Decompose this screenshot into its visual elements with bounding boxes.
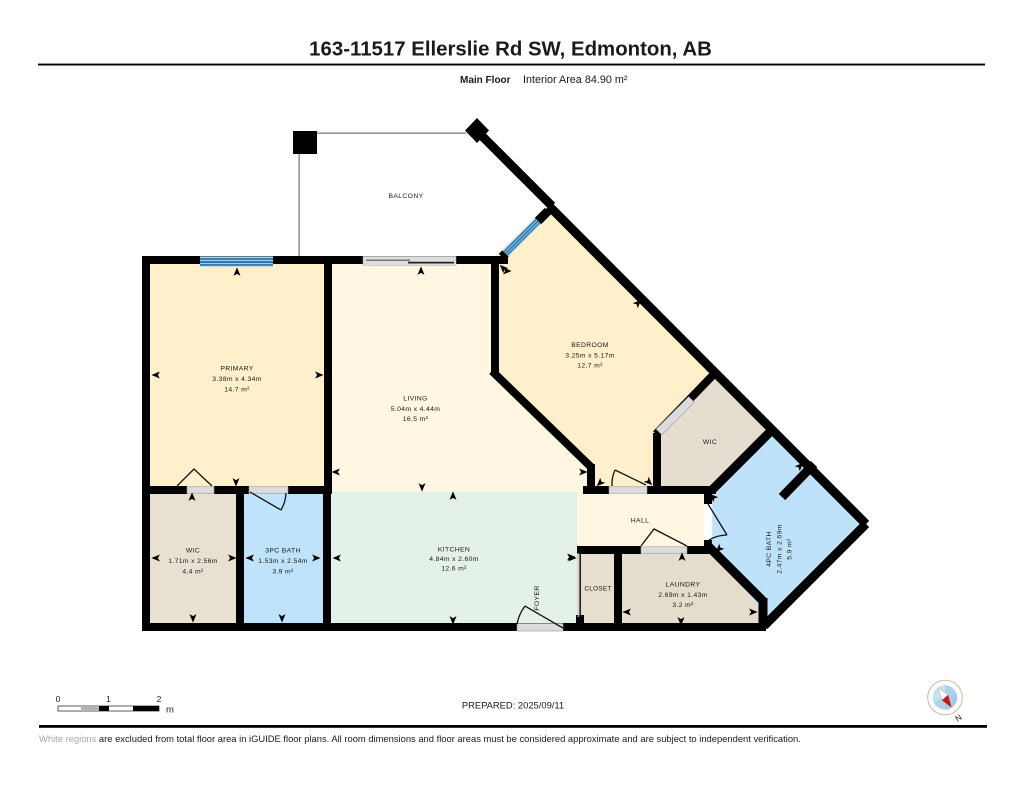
svg-text:LIVING: LIVING: [403, 396, 427, 403]
svg-text:5.9 m²: 5.9 m²: [787, 538, 794, 560]
svg-text:PRIMARY: PRIMARY: [220, 366, 253, 373]
svg-text:2: 2: [157, 694, 162, 704]
svg-text:KITCHEN: KITCHEN: [438, 547, 470, 554]
svg-text:1.53m x 2.54m: 1.53m x 2.54m: [258, 558, 308, 565]
svg-text:163-11517 Ellerslie Rd SW, Edm: 163-11517 Ellerslie Rd SW, Edmonton, AB: [309, 39, 712, 61]
svg-text:3.25m x 5.17m: 3.25m x 5.17m: [565, 352, 615, 359]
svg-text:5.04m x 4.44m: 5.04m x 4.44m: [391, 406, 441, 413]
svg-text:4.84m x 2.60m: 4.84m x 2.60m: [429, 556, 479, 563]
svg-text:3.2 m²: 3.2 m²: [672, 602, 694, 609]
svg-text:PREPARED: 2025/09/11: PREPARED: 2025/09/11: [462, 700, 564, 711]
svg-text:2.69m x 1.43m: 2.69m x 1.43m: [658, 592, 708, 599]
svg-text:FOYER: FOYER: [534, 585, 541, 610]
svg-text:WIC: WIC: [186, 548, 200, 555]
svg-text:3.38m x 4.34m: 3.38m x 4.34m: [212, 376, 262, 383]
svg-text:3.9 m²: 3.9 m²: [272, 568, 294, 575]
svg-text:LAUNDRY: LAUNDRY: [666, 582, 701, 589]
svg-text:HALL: HALL: [631, 518, 649, 525]
svg-text:14.7 m²: 14.7 m²: [224, 386, 250, 393]
svg-text:4.4 m²: 4.4 m²: [182, 568, 204, 575]
svg-text:BALCONY: BALCONY: [389, 193, 424, 200]
svg-text:12.7 m²: 12.7 m²: [577, 363, 603, 370]
svg-text:12.6 m²: 12.6 m²: [441, 566, 467, 573]
svg-text:White regions are excluded fro: White regions are excluded from total fl…: [39, 733, 801, 744]
svg-text:3PC BATH: 3PC BATH: [265, 548, 301, 555]
svg-text:m: m: [166, 705, 174, 716]
svg-text:1: 1: [106, 694, 111, 704]
svg-text:16.5 m²: 16.5 m²: [403, 416, 429, 423]
svg-text:Main Floor: Main Floor: [460, 75, 511, 86]
svg-text:BEDROOM: BEDROOM: [571, 342, 609, 349]
svg-text:Interior Area 84.90 m²: Interior Area 84.90 m²: [523, 74, 628, 86]
svg-text:4PC BATH: 4PC BATH: [766, 531, 773, 567]
svg-text:CLOSET: CLOSET: [584, 586, 611, 593]
svg-text:0: 0: [56, 694, 61, 704]
svg-text:2.47m x 2.69m: 2.47m x 2.69m: [776, 524, 783, 574]
svg-text:1.71m x 2.56m: 1.71m x 2.56m: [168, 558, 218, 565]
svg-text:WIC: WIC: [703, 439, 717, 446]
